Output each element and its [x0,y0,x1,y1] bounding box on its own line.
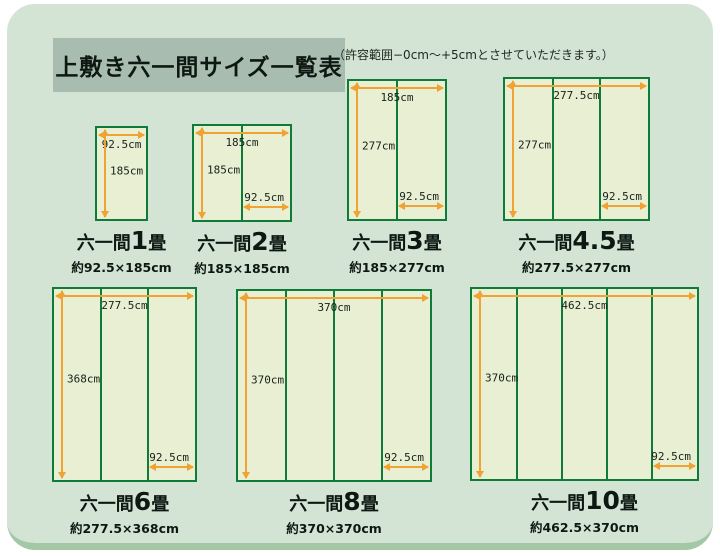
width-arrow [56,295,193,297]
diagram-rokuichima-3jo: 185cm 277cm 92.5cm 六一間3畳 約185×277cm [347,79,447,221]
width-arrow [196,132,288,134]
diagram-size: 約185×277cm [349,257,445,276]
diagram-size: 約92.5×185cm [71,257,171,276]
mat-outline: 462.5cm 370cm 92.5cm [470,287,699,481]
unit-width-label: 92.5cm [149,451,189,464]
diagram-name: 六一間8畳 [286,489,382,518]
width-arrow [351,87,443,89]
diagram-caption: 六一間6畳 約277.5×368cm [70,489,179,537]
page-title: 上敷き六一間サイズ一覧表 [55,48,342,82]
mat-divider [606,289,608,479]
height-dimension-label: 368cm [67,372,100,385]
diagram-rokuichima-6jo: 277.5cm 368cm 92.5cm 六一間6畳 約277.5×368cm [52,287,197,482]
mat-outline: 185cm 277cm 92.5cm [347,79,447,221]
diagram-size: 約277.5×277cm [518,257,634,276]
height-arrow [356,83,358,217]
unit-width-arrow [150,466,193,468]
height-arrow [104,130,106,217]
height-dimension-label: 370cm [485,372,518,385]
mat-divider [333,291,335,480]
width-arrow [240,297,428,299]
width-dimension-label: 462.5cm [561,299,607,312]
width-arrow [474,295,695,297]
width-dimension-label: 370cm [317,301,350,314]
mat-divider [561,289,563,479]
unit-width-arrow [602,205,646,207]
width-dimension-label: 185cm [225,136,258,149]
height-arrow [61,291,63,478]
unit-width-label: 92.5cm [602,190,642,203]
diagram-caption: 六一間10畳 約462.5×370cm [530,488,639,536]
background-panel: 上敷き六一間サイズ一覧表 （許容範囲−0cm〜+5cmとさせていただきます。） … [7,4,713,550]
height-arrow [479,291,481,477]
title-box: 上敷き六一間サイズ一覧表 [53,38,345,92]
diagram-caption: 六一間8畳 約370×370cm [286,489,382,537]
mat-divider [100,289,102,480]
mat-outline: 277.5cm 277cm 92.5cm [503,77,650,221]
diagram-caption: 六一間1畳 約92.5×185cm [71,228,171,276]
width-dimension-label: 277.5cm [101,299,147,312]
mat-outline: 185cm 185cm 92.5cm [192,124,292,222]
diagram-size: 約370×370cm [286,518,382,537]
unit-width-arrow [654,465,695,467]
height-dimension-label: 185cm [207,164,240,177]
unit-width-arrow [244,206,288,208]
height-dimension-label: 370cm [251,373,284,386]
diagram-rokuichima-10jo: 462.5cm 370cm 92.5cm 六一間10畳 約462.5×370cm [470,287,699,481]
height-dimension-label: 277cm [518,138,551,151]
diagram-caption: 六一間4.5畳 約277.5×277cm [518,228,634,276]
diagram-name: 六一間10畳 [530,488,639,517]
unit-width-label: 92.5cm [399,190,439,203]
diagram-name: 六一間4.5畳 [518,228,634,257]
diagram-rokuichima-8jo: 370cm 370cm 92.5cm 六一間8畳 約370×370cm [236,289,432,482]
height-arrow [201,128,203,218]
width-dimension-label: 277.5cm [553,89,599,102]
unit-width-arrow [384,466,428,468]
diagram-name: 六一間1畳 [71,228,171,257]
height-arrow [512,81,514,217]
width-arrow [507,85,646,87]
width-dimension-label: 185cm [380,91,413,104]
diagram-size: 約185×185cm [194,258,290,277]
height-arrow [245,293,247,478]
unit-width-label: 92.5cm [651,450,691,463]
height-dimension-label: 185cm [110,164,143,177]
diagram-name: 六一間3畳 [349,228,445,257]
diagram-size: 約462.5×370cm [530,517,639,536]
diagram-name: 六一間6畳 [70,489,179,518]
diagram-size: 約277.5×368cm [70,518,179,537]
diagram-name: 六一間2畳 [194,229,290,258]
diagram-rokuichima-4-5jo: 277.5cm 277cm 92.5cm 六一間4.5畳 約277.5×277c… [503,77,650,221]
mat-outline: 92.5cm 185cm [95,126,148,221]
mat-outline: 370cm 370cm 92.5cm [236,289,432,482]
width-dimension-label: 92.5cm [102,138,142,151]
diagram-rokuichima-2jo: 185cm 185cm 92.5cm 六一間2畳 約185×185cm [192,124,292,222]
unit-width-label: 92.5cm [384,451,424,464]
mat-outline: 277.5cm 368cm 92.5cm [52,287,197,482]
unit-width-label: 92.5cm [244,191,284,204]
unit-width-arrow [399,205,443,207]
mat-divider [285,291,287,480]
tolerance-note: （許容範囲−0cm〜+5cmとさせていただきます。） [333,46,614,63]
diagram-caption: 六一間3畳 約185×277cm [349,228,445,276]
diagram-caption: 六一間2畳 約185×185cm [194,229,290,277]
diagram-rokuichima-1jo: 92.5cm 185cm 六一間1畳 約92.5×185cm [95,126,148,221]
mat-divider [381,291,383,480]
height-dimension-label: 277cm [362,139,395,152]
